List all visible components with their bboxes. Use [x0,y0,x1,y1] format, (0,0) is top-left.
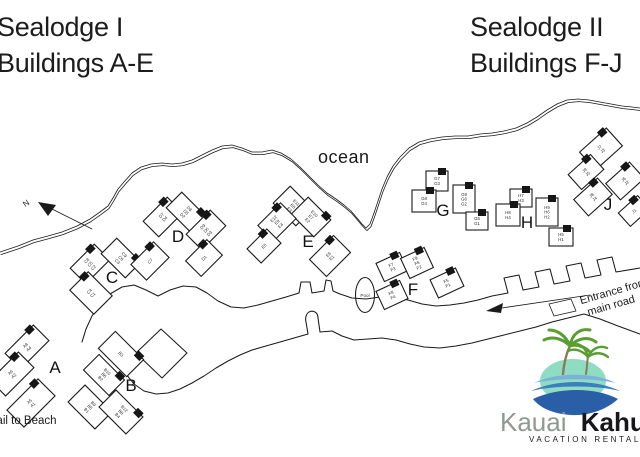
parking-lot-diamond [136,329,187,378]
stairwell-icon [478,209,486,216]
building-letter-G: G [436,201,449,220]
building-H-wing: H8H4 [496,201,520,226]
building-letter-D: D [172,227,184,246]
building-F-wing: F7F3 [375,250,408,282]
title-buildings-f-j: Buildings F-J [470,48,622,78]
building-F-wing: F5F1 [429,265,464,298]
building-letter-F: F [408,280,418,299]
north-arrowhead-icon [38,202,56,216]
building-G: G7G3G8G4G9G6G2G5G1G [412,168,488,230]
unit-labels-H: H5H1 [558,232,564,242]
road-top-edge [82,257,640,342]
ocean-label: ocean [318,147,370,167]
map-svg: N Pool A8A4A6A2A5A1AB3B10B6B2B9B5B1B12B8… [0,0,640,457]
building-letter-C: C [106,268,118,287]
stairwell-icon [465,182,473,189]
logo-brand-text: Kauai Kahuna [500,407,640,437]
stairwell-icon [522,186,530,193]
building-H-wing: H9H6H2 [536,195,558,226]
building-F: F7F3F9F6F2F8F4F5F1F [375,245,464,310]
unit-labels-H: H7H3 [518,193,524,203]
building-F-wing: F8F4 [375,278,408,310]
unit-labels-G: G8G4 [421,196,427,206]
entrance-direction-line [495,295,590,309]
building-letter-H: H [521,213,533,232]
title-sealodge-1: Sealodge I [0,12,123,42]
stairwell-icon [548,195,556,202]
building-D-wing: D1 [183,237,222,276]
logo-brand-kauai: Kauai [500,407,567,437]
building-A: A8A4A6A2A5A1A [0,323,61,427]
building-G-wing: G9G6G2 [453,182,475,213]
unit-labels-G: G7G3 [434,176,440,186]
kauai-kahuna-logo: Kauai Kahuna Vacation Rentals [500,330,640,444]
title-sealodge-2: Sealodge II [470,12,603,42]
coastline-inner [1,102,640,255]
building-F-wing: F9F6F2 [399,245,433,279]
logo-tagline: Vacation Rentals [529,435,640,444]
stairwell-icon [438,168,446,175]
unit-labels-H: H8H4 [505,210,511,220]
pool: Pool [356,278,375,313]
building-letter-B: B [125,376,136,395]
entrance-median-strip [549,299,576,316]
unit-labels-G: G9G6G2 [461,192,467,207]
trail-to-beach-label: Trail to Beach [0,415,57,427]
building-C-wing: C7 [129,240,169,280]
building-letter-E: E [302,232,313,251]
north-arrow-line [50,208,92,229]
sealodge-property-map: N Pool A8A4A6A2A5A1AB3B10B6B2B9B5B1B12B8… [0,0,640,457]
building-letter-A: A [49,358,61,377]
building-G-wing: G5G1 [466,209,488,230]
building-B: B3B10B6B2B9B5B1B12B8B4B [68,329,146,434]
building-E-wing: E6E1 [307,233,350,276]
stairwell-icon [510,201,518,208]
pool-label: Pool [360,293,369,298]
entrance-arrowhead-icon [486,303,503,313]
entrance-label: Entrance from main road [579,276,640,319]
unit-labels-G: G5G1 [474,216,480,226]
building-H-wing: H5H1 [549,225,573,246]
unit-labels-H: H9H6H2 [544,205,550,220]
north-arrow: N [21,198,92,229]
stairwell-icon [426,187,434,194]
building-C: C8C5C2C9C6C3C7C4C1C [68,236,169,314]
north-label: N [21,198,31,209]
building-letter-J: J [604,195,613,214]
title-buildings-a-e: Buildings A-E [0,48,154,78]
building-J: J7J3J9J5J8J4J6J2J1J [566,126,640,227]
building-B-wing: B12B8B4 [99,388,145,434]
palm-frond [588,353,608,357]
building-G-wing: G8G4 [412,187,436,212]
logo-brand-kahuna: Kahuna [581,407,640,437]
stairwell-icon [563,225,571,232]
building-H: H7H3H8H4H9H6H2H5H1H [496,186,573,246]
